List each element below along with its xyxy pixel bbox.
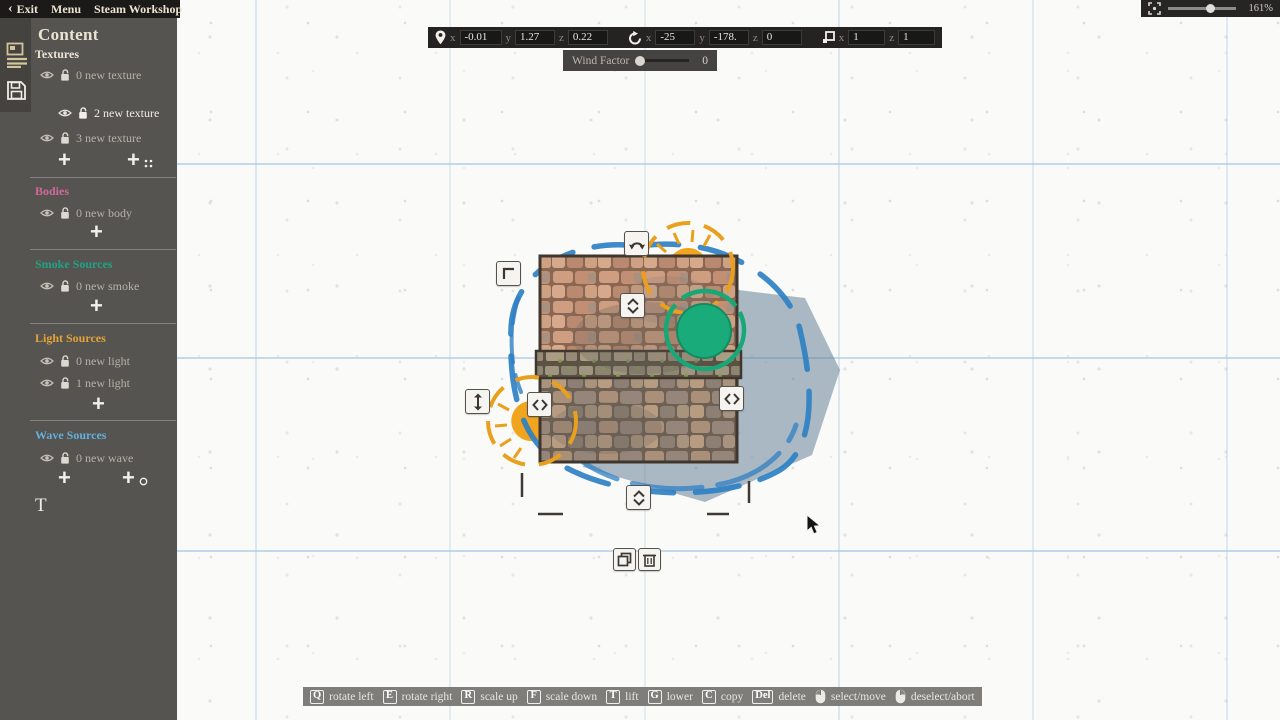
section-divider (30, 177, 176, 178)
wind-factor-value: 0 (702, 55, 708, 67)
smoke-item[interactable]: 0 new smoke (0, 276, 177, 296)
hotkey-bar: Q rotate left E rotate right R scale up … (303, 687, 982, 706)
copy-icon (617, 552, 632, 567)
zoom-bar: 161% (1141, 0, 1280, 17)
add-body-button[interactable]: + (90, 221, 103, 243)
trash-icon (642, 552, 657, 567)
add-wave-button[interactable]: + (58, 467, 71, 489)
lock-open-icon[interactable] (60, 377, 70, 390)
add-tiled-texture-button[interactable]: + (127, 149, 140, 171)
wave-item-label: 0 new wave (76, 451, 133, 466)
lock-open-icon[interactable] (60, 207, 70, 220)
zoom-slider[interactable] (1168, 7, 1236, 10)
texture-item-label: 3 new texture (76, 131, 141, 146)
hotkey-label: scale down (546, 691, 597, 703)
section-label-textures: Textures (35, 47, 79, 62)
key-cap: G (648, 690, 662, 704)
axis-label: y (506, 32, 512, 44)
hotkey-label: rotate right (402, 691, 453, 703)
body-item[interactable]: 0 new body (0, 203, 177, 223)
copy-object-button[interactable] (613, 548, 636, 571)
lock-open-icon[interactable] (60, 69, 70, 82)
section-label-waves: Wave Sources (35, 428, 106, 443)
add-light-button[interactable]: + (92, 393, 105, 415)
add-texture-button[interactable]: + (58, 149, 71, 171)
hotkey-label: scale up (480, 691, 517, 703)
axis-label: x (646, 32, 652, 44)
hotkey-label: rotate left (329, 691, 373, 703)
chevrons-left-right-icon (531, 397, 549, 413)
lift-handle[interactable] (465, 389, 490, 414)
hotkey-scale-down: F scale down (527, 690, 597, 704)
hotkey-label: lower (667, 691, 693, 703)
section-label-smoke: Smoke Sources (35, 257, 112, 272)
object-action-buttons (613, 548, 661, 571)
rotate-icon (628, 237, 646, 251)
add-smoke-button[interactable]: + (90, 295, 103, 317)
wind-factor-label: Wind Factor (572, 55, 629, 67)
eye-icon[interactable] (40, 356, 54, 366)
sidebar-title: Content (38, 25, 99, 45)
map-canvas[interactable] (0, 0, 1280, 720)
hotkey-label: select/move (831, 691, 886, 703)
mouse-right-icon (895, 689, 906, 704)
menubar: ‹ Exit Menu Steam Workshop (0, 0, 180, 18)
lock-open-icon[interactable] (60, 452, 70, 465)
key-cap: C (702, 690, 716, 704)
chevrons-left-right-icon (723, 391, 741, 407)
lock-open-icon[interactable] (60, 132, 70, 145)
section-divider (30, 420, 176, 421)
eye-icon[interactable] (40, 208, 54, 218)
position-group: x -0.01 y 1.27 z 0.22 (435, 30, 608, 45)
grid-dots-icon (144, 159, 153, 168)
scale-z-input[interactable]: 1 (898, 30, 935, 45)
menu-exit[interactable]: Exit (17, 2, 38, 17)
lock-open-icon[interactable] (60, 355, 70, 368)
hotkey-lower: G lower (648, 690, 693, 704)
key-cap: R (461, 690, 475, 704)
smoke-item-label: 0 new smoke (76, 279, 139, 294)
texture-item[interactable]: 3 new texture (0, 128, 177, 148)
light-item-label: 0 new light (76, 354, 130, 369)
rotation-z-input[interactable]: 0 (762, 30, 802, 45)
rotate-handle[interactable] (624, 231, 649, 256)
wind-factor-slider[interactable] (637, 59, 689, 62)
axis-label: y (699, 32, 705, 44)
text-tool-button[interactable]: T (35, 495, 47, 517)
hotkey-delete: Del delete (752, 690, 806, 704)
section-divider (30, 323, 176, 324)
transform-toolbar: x -0.01 y 1.27 z 0.22 x -25 y -178. z 0 (428, 27, 942, 48)
scale-group: x 1 z 1 (822, 30, 935, 45)
scale-x-input[interactable]: 1 (848, 30, 885, 45)
zoom-extents-icon[interactable] (1148, 2, 1161, 15)
hotkey-label: deselect/abort (911, 691, 975, 703)
position-pin-icon (435, 30, 446, 45)
wave-item[interactable]: 0 new wave (0, 448, 177, 468)
hotkey-select-move: select/move (815, 689, 886, 704)
chevrons-up-down-icon (624, 297, 642, 315)
axis-label: z (753, 32, 758, 44)
axis-label: z (889, 32, 894, 44)
hotkey-label: delete (778, 691, 805, 703)
key-cap: Q (310, 690, 324, 704)
wind-slider-knob[interactable] (635, 56, 645, 66)
key-cap: Del (752, 690, 773, 704)
scale-icon (822, 31, 835, 44)
eye-icon[interactable] (40, 70, 54, 80)
eye-icon[interactable] (40, 378, 54, 388)
corner-resize-handle[interactable] (496, 261, 521, 286)
position-z-input[interactable]: 0.22 (568, 30, 608, 45)
axis-label: x (839, 32, 845, 44)
move-vertical-handle-top[interactable] (620, 293, 645, 318)
arrow-up-down-icon (472, 393, 484, 411)
light-item-label: 1 new light (76, 376, 130, 391)
scene-drawing (0, 0, 1280, 720)
wind-factor-panel: Wind Factor 0 (563, 50, 717, 71)
hotkey-rotate-right: E rotate right (383, 690, 453, 704)
zoom-slider-knob[interactable] (1206, 4, 1215, 13)
light-item[interactable]: 0 new light (0, 351, 177, 371)
rotation-y-input[interactable]: -178. (709, 30, 749, 45)
delete-object-button[interactable] (638, 548, 661, 571)
hotkey-copy: C copy (702, 690, 743, 704)
add-wave-circle-button[interactable]: + (122, 467, 135, 489)
content-sidebar: Content Textures 0 new texture 2 new tex… (0, 18, 177, 720)
zoom-value: 161% (1249, 3, 1274, 14)
body-item-label: 0 new body (76, 206, 132, 221)
app-window: ‹ Exit Menu Steam Workshop Content Textu… (0, 0, 1280, 720)
eye-icon[interactable] (40, 133, 54, 143)
eye-icon[interactable] (40, 453, 54, 463)
hotkey-label: lift (625, 691, 638, 703)
hotkey-label: copy (721, 691, 743, 703)
position-x-input[interactable]: -0.01 (460, 30, 502, 45)
chevrons-up-down-icon (630, 489, 648, 507)
section-divider (30, 249, 176, 250)
move-horizontal-handle-left[interactable] (527, 392, 552, 417)
lock-open-icon[interactable] (78, 107, 88, 120)
axis-label: x (450, 32, 456, 44)
section-label-lights: Light Sources (35, 331, 106, 346)
position-y-input[interactable]: 1.27 (515, 30, 555, 45)
eye-icon[interactable] (58, 108, 72, 118)
hotkey-deselect-abort: deselect/abort (895, 689, 975, 704)
move-vertical-handle-bottom[interactable] (626, 485, 651, 510)
section-label-bodies: Bodies (35, 184, 69, 199)
rotation-group: x -25 y -178. z 0 (628, 30, 802, 45)
light-item[interactable]: 1 new light (0, 373, 177, 393)
small-circle-icon (139, 477, 148, 486)
building-object (536, 256, 741, 462)
texture-item-selected[interactable]: 2 new texture (0, 103, 177, 123)
texture-item[interactable]: 0 new texture (0, 65, 177, 85)
corner-bracket-icon (501, 266, 517, 282)
axis-label: z (559, 32, 564, 44)
eye-icon[interactable] (40, 281, 54, 291)
rotation-icon (628, 31, 642, 45)
hotkey-rotate-left: Q rotate left (310, 690, 374, 704)
mouse-cursor (805, 514, 823, 538)
hotkey-lift: T lift (606, 690, 638, 704)
hotkey-scale-up: R scale up (461, 690, 517, 704)
texture-item-label: 0 new texture (76, 68, 141, 83)
key-cap: E (383, 690, 397, 704)
menu-menu[interactable]: Menu (51, 2, 81, 17)
mouse-left-icon (815, 689, 826, 704)
lock-open-icon[interactable] (60, 280, 70, 293)
menu-steam-workshop[interactable]: Steam Workshop (94, 2, 182, 17)
back-chevron-icon: ‹ (8, 2, 13, 16)
key-cap: F (527, 690, 541, 704)
texture-item-label: 2 new texture (94, 106, 159, 121)
rotation-x-input[interactable]: -25 (655, 30, 695, 45)
move-horizontal-handle-right[interactable] (719, 386, 744, 411)
key-cap: T (606, 690, 620, 704)
